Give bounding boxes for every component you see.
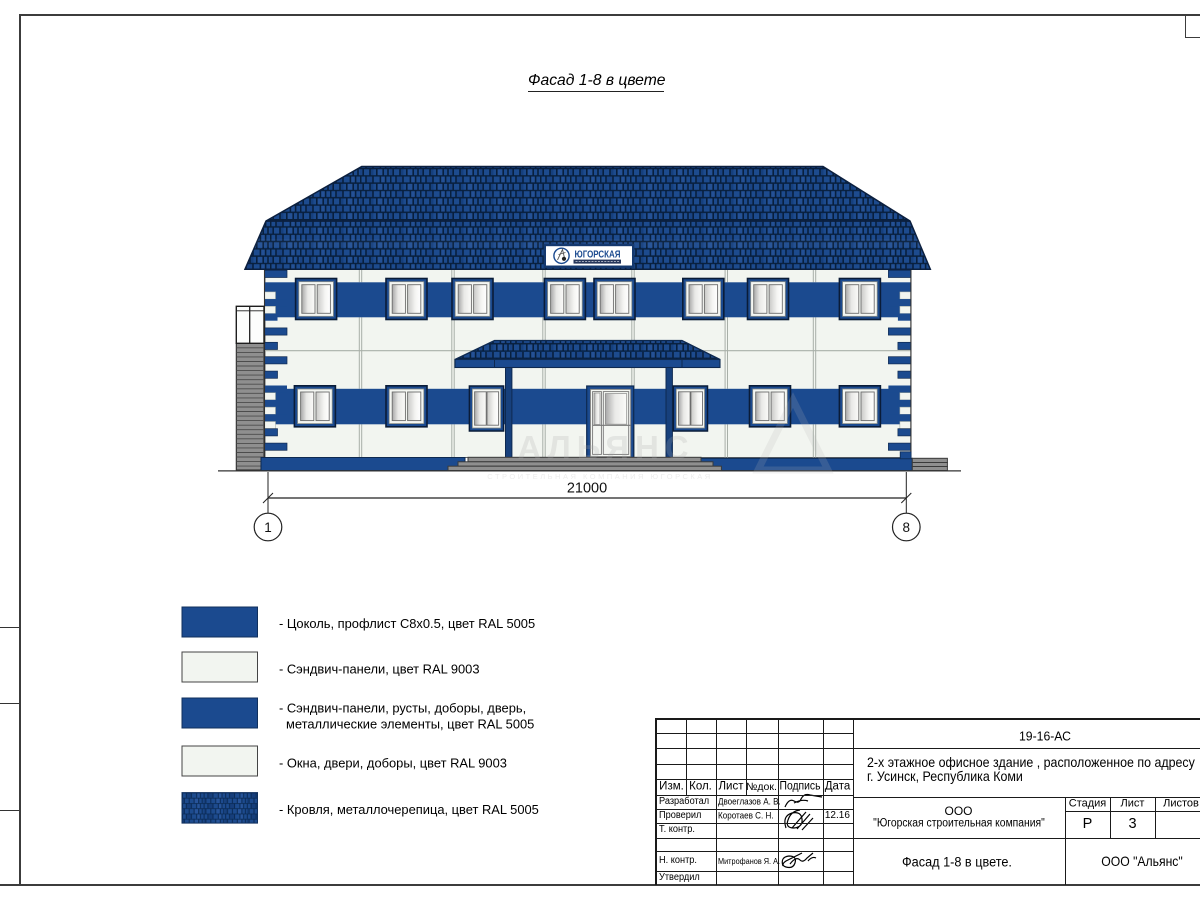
svg-text:АЛЬЯНС: АЛЬЯНС (517, 429, 694, 466)
svg-text:1: 1 (264, 520, 272, 535)
svg-text:- Сэндвич-панели, русты, добор: - Сэндвич-панели, русты, доборы, дверь, (279, 700, 526, 715)
svg-text:- Цоколь, профлист С8х0.5, цве: - Цоколь, профлист С8х0.5, цвет RAL 5005 (279, 616, 535, 631)
svg-text:металлические элементы, цвет R: металлические элементы, цвет RAL 5005 (286, 717, 534, 732)
svg-text:- Сэндвич-панели, цвет RAL 900: - Сэндвич-панели, цвет RAL 9003 (279, 662, 480, 677)
svg-text:- Окна, двери, доборы, цвет RA: - Окна, двери, доборы, цвет RAL 9003 (279, 755, 507, 770)
svg-text:ЮГОРСКАЯ: ЮГОРСКАЯ (575, 250, 621, 261)
svg-text:- Кровля, металлочерепица, цве: - Кровля, металлочерепица, цвет RAL 5005 (279, 802, 539, 817)
svg-text:21000: 21000 (567, 481, 607, 497)
svg-text:8: 8 (903, 520, 911, 535)
